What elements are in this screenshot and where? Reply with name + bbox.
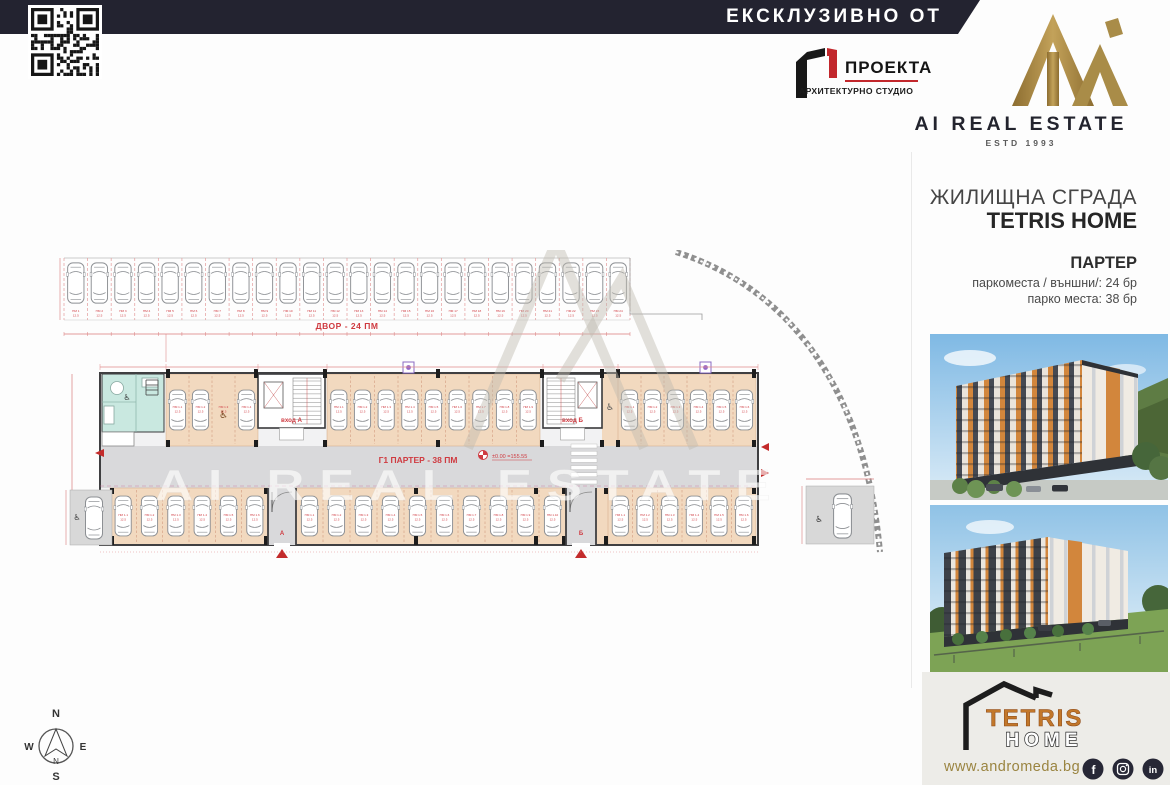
car-icon [585, 263, 604, 303]
compass-west: W [24, 742, 34, 753]
instagram-icon [1112, 758, 1134, 780]
entrance-label: вход А [281, 417, 302, 424]
car-icon [208, 263, 227, 303]
svg-text:ПМ 19: ПМ 19 [496, 309, 505, 313]
svg-text:12.5: 12.5 [73, 314, 79, 318]
svg-text:12.5: 12.5 [642, 518, 648, 522]
social-icons: f in [1082, 758, 1164, 780]
svg-text:12.5: 12.5 [360, 410, 366, 414]
svg-text:12.5: 12.5 [497, 314, 503, 318]
svg-text:ПМ 1.3: ПМ 1.3 [359, 513, 369, 517]
exit-label: А [280, 531, 285, 537]
compass-rose: N S W E N [24, 704, 88, 785]
svg-text:ПМ 1.5: ПМ 1.5 [413, 513, 423, 517]
car-icon [373, 263, 392, 303]
svg-text:ПМ 1.7: ПМ 1.7 [467, 513, 477, 517]
svg-text:ПМ 1.9: ПМ 1.9 [521, 513, 531, 517]
svg-text:ПМ 1.10: ПМ 1.10 [547, 513, 559, 517]
svg-text:12.5: 12.5 [199, 518, 205, 522]
svg-text:ПМ 1.3: ПМ 1.3 [665, 513, 675, 517]
svg-text:ПМ 12: ПМ 12 [331, 309, 340, 313]
car-icon [302, 263, 321, 303]
architect-icon-red [827, 48, 837, 78]
svg-text:12.5: 12.5 [309, 314, 315, 318]
svg-text:12.5: 12.5 [120, 314, 126, 318]
tetris-home-logo: TETRIS HOME [952, 678, 1152, 759]
svg-text:12.5: 12.5 [474, 314, 480, 318]
tetris-home-text: HOME [1006, 730, 1083, 751]
yard-label: ДВОР - 24 ПМ [316, 321, 379, 331]
svg-text:12.5: 12.5 [356, 314, 362, 318]
svg-text:ПМ 3: ПМ 3 [119, 309, 127, 313]
svg-text:12.5: 12.5 [238, 314, 244, 318]
render-photo-1 [930, 334, 1168, 505]
svg-text:12.5: 12.5 [525, 410, 531, 414]
building-type: ЖИЛИЩНА СГРАДА [930, 186, 1137, 210]
exit-label: Б [579, 531, 584, 537]
svg-text:ПМ 1.8: ПМ 1.8 [494, 513, 504, 517]
svg-text:ПМ 4: ПМ 4 [143, 309, 151, 313]
svg-text:12.5: 12.5 [120, 518, 126, 522]
car-icon [444, 263, 463, 303]
svg-text:ПМ 1.2: ПМ 1.2 [358, 405, 368, 409]
svg-text:12.5: 12.5 [379, 314, 385, 318]
svg-text:ПМ 1.2: ПМ 1.2 [196, 405, 206, 409]
building-name: TETRIS HOME [987, 208, 1137, 234]
compass-inner-n: N [53, 757, 59, 766]
svg-text:ПМ 13: ПМ 13 [354, 309, 363, 313]
car-icon [137, 263, 156, 303]
utility-symbol [700, 362, 711, 373]
svg-text:ПМ 24: ПМ 24 [614, 309, 623, 313]
svg-text:12.5: 12.5 [167, 314, 173, 318]
svg-text:12.5: 12.5 [361, 518, 367, 522]
svg-text:12.5: 12.5 [667, 518, 673, 522]
svg-text:12.5: 12.5 [147, 518, 153, 522]
svg-text:ПМ 1.4: ПМ 1.4 [694, 405, 704, 409]
car-icon [326, 263, 345, 303]
garage-building: ПМ 1.112.5ПМ 1.212.5♿ПМ 1.312.5ПМ 1.412.… [72, 362, 769, 558]
svg-text:12.5: 12.5 [615, 314, 621, 318]
svg-text:12.5: 12.5 [407, 410, 413, 414]
top-banner: ЕКСКЛУЗИВНО ОТ [0, 0, 980, 34]
svg-text:12.5: 12.5 [388, 518, 394, 522]
svg-text:12.5: 12.5 [442, 518, 448, 522]
parking-outside-count: паркоместа / външни/: 24 бр [972, 276, 1137, 290]
wheelchair-icon: ♿ [73, 513, 80, 522]
compass-north: N [52, 708, 60, 720]
svg-text:ПМ 1.5: ПМ 1.5 [224, 513, 234, 517]
svg-text:12.5: 12.5 [221, 410, 227, 414]
svg-text:ПМ 1.1: ПМ 1.1 [615, 513, 625, 517]
architect-icon-top [807, 48, 825, 60]
svg-text:ПМ 15: ПМ 15 [401, 309, 410, 313]
svg-text:ПМ 11: ПМ 11 [307, 309, 316, 313]
wheelchair-icon: ♿ [606, 402, 614, 412]
car-icon [397, 263, 416, 303]
svg-text:12.5: 12.5 [523, 518, 529, 522]
svg-text:ПМ 1.5: ПМ 1.5 [714, 513, 724, 517]
svg-text:ПМ 1.2: ПМ 1.2 [648, 405, 658, 409]
svg-text:12.5: 12.5 [469, 518, 475, 522]
svg-text:ПМ 1.6: ПМ 1.6 [452, 405, 462, 409]
svg-text:12.5: 12.5 [198, 410, 204, 414]
floor-plan: ПМ 112.5ПМ 212.5ПМ 312.5ПМ 412.5ПМ 512.5… [0, 250, 930, 670]
svg-text:ПМ 1.2: ПМ 1.2 [332, 513, 342, 517]
website-url: www.andromeda.bg [944, 759, 1080, 775]
handicap-stall-right: ♿ [802, 479, 874, 544]
brand-dot [1105, 18, 1123, 38]
svg-text:12.5: 12.5 [454, 410, 460, 414]
exclusive-label: ЕКСКЛУЗИВНО ОТ [726, 6, 942, 28]
crosswalk-bar [571, 451, 597, 455]
svg-text:12.5: 12.5 [496, 518, 502, 522]
svg-text:ПМ 1.1: ПМ 1.1 [334, 405, 344, 409]
architect-name: ПРОЕКТА [845, 58, 932, 78]
svg-text:ПМ 18: ПМ 18 [472, 309, 481, 313]
handicap-stall-left: ♿ [66, 490, 112, 545]
svg-text:12.5: 12.5 [741, 518, 747, 522]
svg-text:12.5: 12.5 [403, 314, 409, 318]
car-icon [491, 263, 510, 303]
svg-text:12.5: 12.5 [252, 518, 258, 522]
svg-text:ПМ 14: ПМ 14 [378, 309, 387, 313]
brand-stem [1047, 52, 1059, 106]
svg-text:ПМ 8: ПМ 8 [237, 309, 245, 313]
level-label: ±0.00 =155.55 [492, 454, 527, 460]
svg-text:12.5: 12.5 [696, 410, 702, 414]
car-icon [231, 263, 250, 303]
svg-text:12.5: 12.5 [431, 410, 437, 414]
architect-logo-icon [794, 44, 840, 107]
svg-text:ПМ 1.5: ПМ 1.5 [717, 405, 727, 409]
parking-total-count: парко места: 38 бр [1028, 292, 1137, 306]
svg-text:ПМ 1.6: ПМ 1.6 [739, 513, 749, 517]
brand-name: AI REAL ESTATE [890, 113, 1152, 136]
car-icon [420, 263, 439, 303]
svg-text:12.5: 12.5 [427, 314, 433, 318]
wheelchair-icon: ♿ [123, 393, 130, 402]
svg-text:12.5: 12.5 [742, 410, 748, 414]
floor-title: ПАРТЕР [1070, 254, 1137, 273]
svg-text:12.5: 12.5 [544, 314, 550, 318]
exit-arrow [575, 549, 587, 558]
render-photo-2 [930, 505, 1168, 678]
svg-text:12.5: 12.5 [214, 314, 220, 318]
aisle-arrow-in [761, 443, 769, 451]
svg-text:12.5: 12.5 [96, 314, 102, 318]
svg-text:ПМ 1.5: ПМ 1.5 [429, 405, 439, 409]
svg-text:ПМ 1.4: ПМ 1.4 [689, 513, 699, 517]
svg-text:ПМ 1.2: ПМ 1.2 [145, 513, 155, 517]
svg-text:ПМ 1.6: ПМ 1.6 [740, 405, 750, 409]
svg-text:12.5: 12.5 [336, 410, 342, 414]
svg-text:ПМ 1.4: ПМ 1.4 [405, 405, 415, 409]
svg-text:in: in [1149, 765, 1158, 776]
svg-text:12.5: 12.5 [568, 314, 574, 318]
svg-text:12.5: 12.5 [650, 410, 656, 414]
crosswalk-bar [571, 444, 597, 448]
svg-text:12.5: 12.5 [415, 518, 421, 522]
svg-text:12.5: 12.5 [450, 314, 456, 318]
car-icon [66, 263, 85, 303]
car-icon [279, 263, 298, 303]
svg-text:ПМ 1: ПМ 1 [72, 309, 80, 313]
svg-text:12.5: 12.5 [144, 314, 150, 318]
brand-peak-right [1072, 44, 1128, 106]
svg-text:12.5: 12.5 [173, 518, 179, 522]
svg-text:12.5: 12.5 [226, 518, 232, 522]
svg-text:12.5: 12.5 [719, 410, 725, 414]
svg-text:ПМ 1.6: ПМ 1.6 [440, 513, 450, 517]
brochure-page: ЕКСКЛУЗИВНО ОТ ПРОЕКТА АРХИТЕКТУРНО СТУД… [0, 0, 1170, 785]
wheelchair-icon: ♿ [815, 514, 823, 524]
brand-logo-icon [1006, 8, 1136, 113]
architect-underline [845, 80, 918, 82]
svg-text:12.5: 12.5 [550, 518, 556, 522]
svg-text:12.5: 12.5 [332, 314, 338, 318]
svg-text:ПМ 16: ПМ 16 [425, 309, 434, 313]
svg-text:ПМ 21: ПМ 21 [543, 309, 552, 313]
svg-text:ПМ 1.3: ПМ 1.3 [171, 513, 181, 517]
svg-text:ПМ 1.4: ПМ 1.4 [242, 405, 252, 409]
svg-text:ПМ 1.1: ПМ 1.1 [173, 405, 183, 409]
brand-estd: ESTD 1993 [890, 138, 1152, 148]
svg-text:12.5: 12.5 [383, 410, 389, 414]
qr-code-image [31, 8, 99, 76]
car-icon [832, 494, 853, 538]
svg-text:12.5: 12.5 [307, 518, 313, 522]
car-icon [349, 263, 368, 303]
svg-text:ПМ 1.3: ПМ 1.3 [381, 405, 391, 409]
watermark-text: AI REAL ESTATE [155, 461, 785, 510]
facebook-icon: f [1082, 758, 1104, 780]
svg-text:ПМ 22: ПМ 22 [566, 309, 575, 313]
compass-east: E [80, 742, 87, 753]
svg-text:ПМ 6: ПМ 6 [190, 309, 198, 313]
svg-text:ПМ 1.6: ПМ 1.6 [250, 513, 260, 517]
svg-text:ПМ 1.4: ПМ 1.4 [386, 513, 396, 517]
svg-text:ПМ 9: ПМ 9 [261, 309, 269, 313]
svg-text:12.5: 12.5 [191, 314, 197, 318]
svg-text:12.5: 12.5 [285, 314, 291, 318]
svg-text:ПМ 1.3: ПМ 1.3 [219, 405, 229, 409]
car-icon [90, 263, 109, 303]
svg-text:ПМ 7: ПМ 7 [214, 309, 222, 313]
svg-text:12.5: 12.5 [617, 518, 623, 522]
exit-arrow [276, 549, 288, 558]
svg-text:12.5: 12.5 [334, 518, 340, 522]
tetris-logo-text: TETRIS [986, 705, 1083, 732]
svg-text:ПМ 1.8: ПМ 1.8 [500, 405, 510, 409]
svg-text:ПМ 2: ПМ 2 [96, 309, 104, 313]
car-icon [114, 263, 133, 303]
svg-text:ПМ 1.1: ПМ 1.1 [118, 513, 128, 517]
entrance-label: вход Б [562, 417, 583, 424]
svg-text:ПМ 1.4: ПМ 1.4 [197, 513, 207, 517]
architect-subtitle: АРХИТЕКТУРНО СТУДИО [799, 86, 913, 96]
svg-text:ПМ 17: ПМ 17 [449, 309, 458, 313]
svg-text:12.5: 12.5 [244, 410, 250, 414]
svg-text:12.5: 12.5 [175, 410, 181, 414]
svg-text:ПМ 10: ПМ 10 [283, 309, 292, 313]
car-icon [255, 263, 274, 303]
svg-text:12.5: 12.5 [691, 518, 697, 522]
svg-text:ПМ 1.2: ПМ 1.2 [640, 513, 650, 517]
car-icon [161, 263, 180, 303]
svg-text:ПМ 1.9: ПМ 1.9 [523, 405, 533, 409]
svg-text:12.5: 12.5 [716, 518, 722, 522]
car-icon [467, 263, 486, 303]
compass-south: S [52, 771, 59, 782]
car-icon [84, 497, 104, 539]
qr-code [28, 5, 102, 79]
linkedin-icon: in [1142, 758, 1164, 780]
svg-text:ПМ 5: ПМ 5 [166, 309, 174, 313]
svg-text:12.5: 12.5 [502, 410, 508, 414]
car-icon [184, 263, 203, 303]
svg-text:ПМ 1.1: ПМ 1.1 [305, 513, 315, 517]
utility-symbol [403, 362, 414, 373]
svg-text:12.5: 12.5 [261, 314, 267, 318]
